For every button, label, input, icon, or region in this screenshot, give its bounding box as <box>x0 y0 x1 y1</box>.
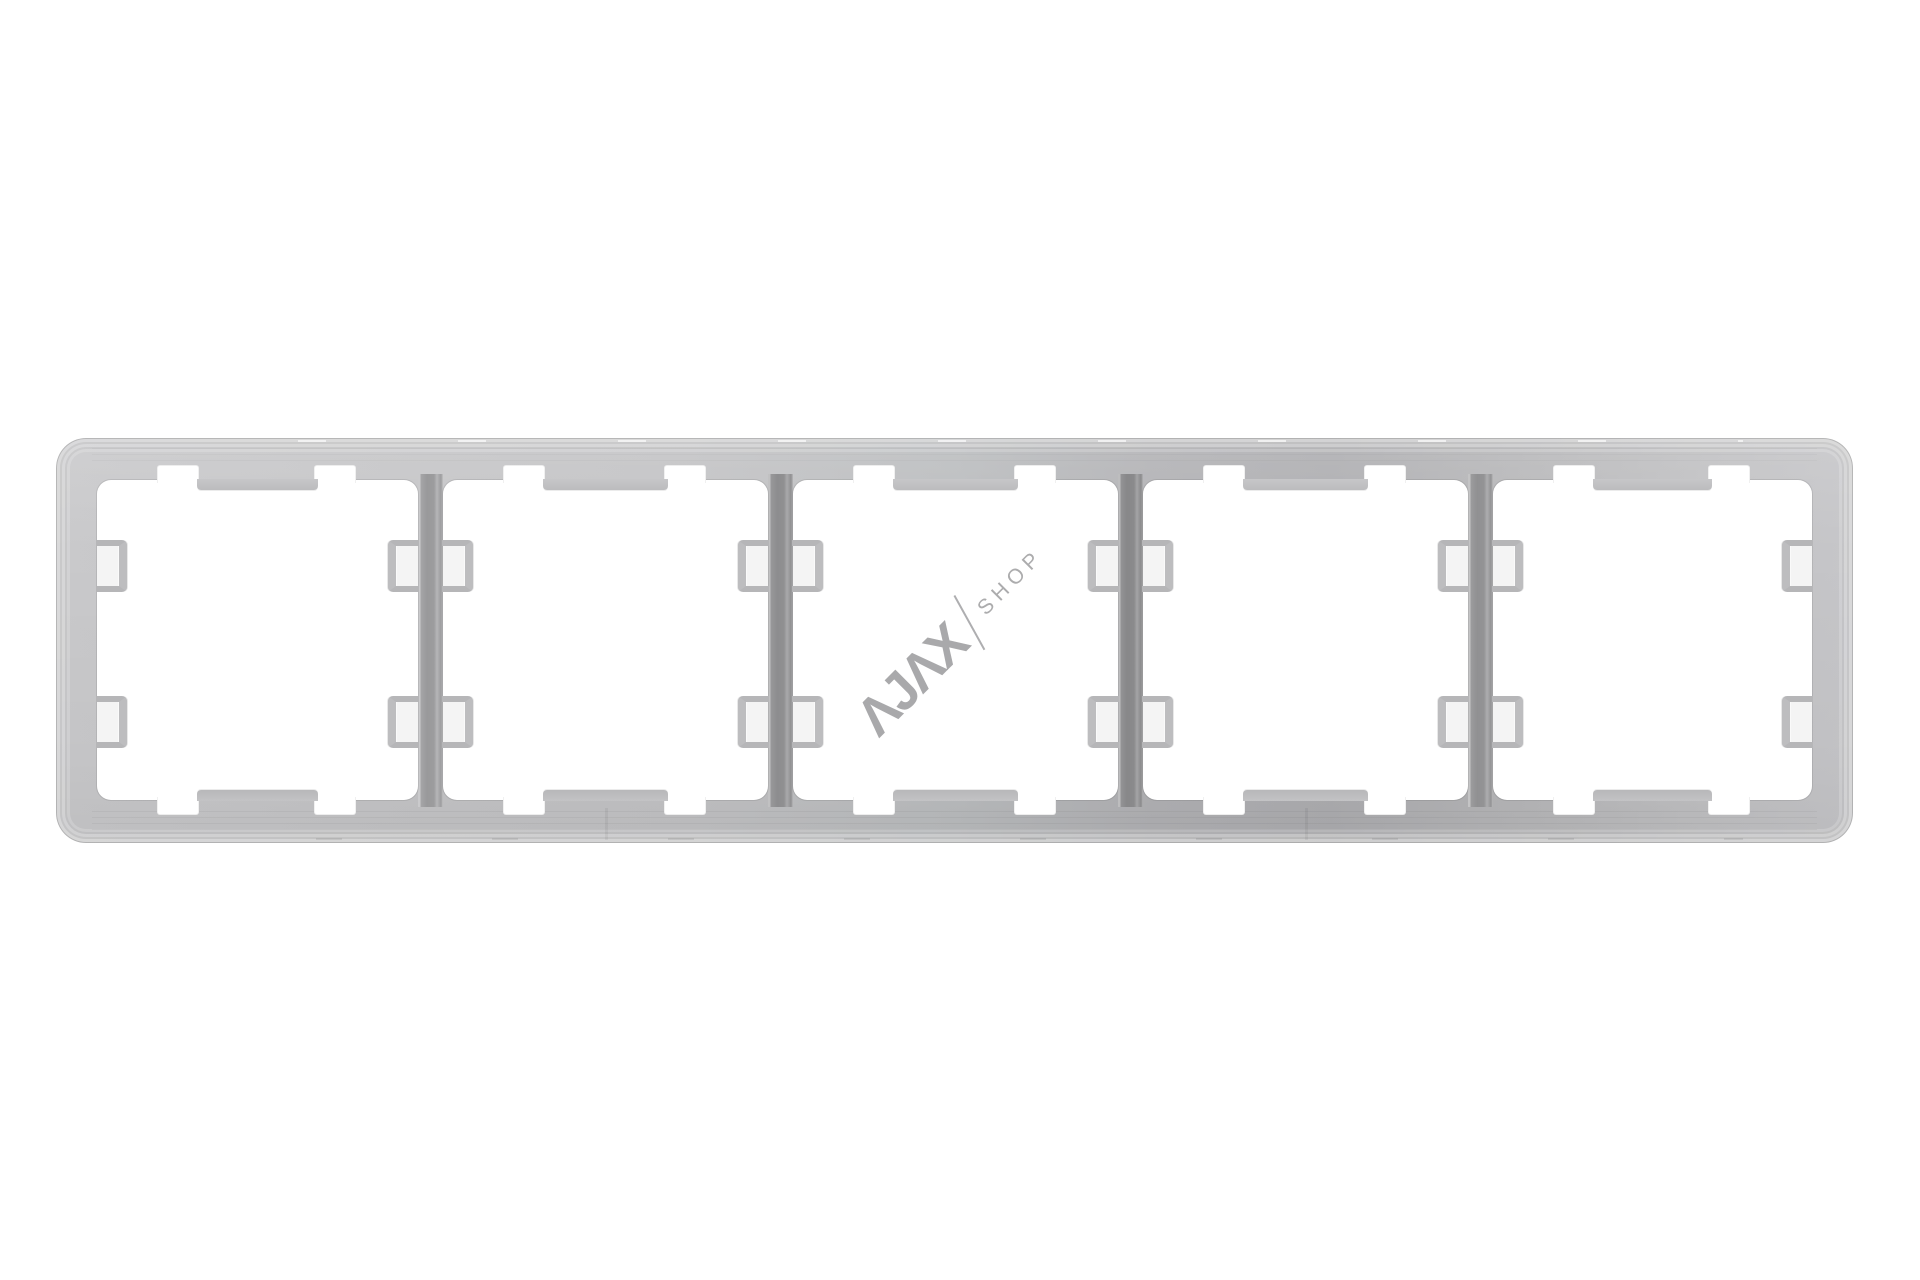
alignment-notch-bottom-right <box>664 797 706 815</box>
alignment-notch-bottom-left <box>853 797 895 815</box>
center-tab-bottom <box>1243 790 1368 801</box>
alignment-notch-bottom-right <box>314 797 356 815</box>
retention-clip-right-lower <box>738 696 769 748</box>
alignment-notch-top-right <box>1364 465 1406 483</box>
center-tab-top <box>1243 479 1368 490</box>
center-tab-top <box>1593 479 1712 490</box>
center-tab-bottom <box>543 790 668 801</box>
center-tab-bottom <box>1593 790 1712 801</box>
retention-clip-left-upper <box>96 540 127 592</box>
alignment-notch-bottom-left <box>157 797 199 815</box>
retention-clip-right-upper <box>1088 540 1119 592</box>
retention-clip-right-upper <box>388 540 419 592</box>
retention-clip-left-upper <box>1142 540 1173 592</box>
frame-window-5 <box>1493 480 1812 800</box>
retention-clip-left-upper <box>1492 540 1523 592</box>
alignment-notch-bottom-left <box>1203 797 1245 815</box>
center-tab-bottom <box>197 790 318 801</box>
divider-bar-3 <box>1118 474 1143 807</box>
retention-clip-left-lower <box>442 696 473 748</box>
divider-bar-1 <box>418 474 443 807</box>
alignment-notch-top-right <box>664 465 706 483</box>
molding-ridges-top <box>92 448 1817 466</box>
alignment-notch-bottom-left <box>503 797 545 815</box>
alignment-notch-top-left <box>853 465 895 483</box>
alignment-notch-top-left <box>157 465 199 483</box>
center-tab-top <box>197 479 318 490</box>
mold-seam <box>1305 808 1308 840</box>
alignment-notch-top-right <box>1708 465 1750 483</box>
retention-clip-left-upper <box>442 540 473 592</box>
alignment-notch-top-left <box>1203 465 1245 483</box>
alignment-notch-top-right <box>314 465 356 483</box>
retention-clip-right-upper <box>738 540 769 592</box>
center-tab-bottom <box>893 790 1018 801</box>
retention-clip-right-lower <box>1438 696 1469 748</box>
retention-clip-right-lower <box>1782 696 1813 748</box>
frame-window-2 <box>443 480 768 800</box>
retention-clip-left-upper <box>792 540 823 592</box>
retention-clip-left-lower <box>792 696 823 748</box>
mold-seam <box>605 808 608 840</box>
retention-clip-right-upper <box>1782 540 1813 592</box>
retention-clip-left-lower <box>96 696 127 748</box>
molding-ticks-top <box>166 440 1743 442</box>
alignment-notch-bottom-right <box>1364 797 1406 815</box>
frame-window-1 <box>97 480 418 800</box>
alignment-notch-bottom-right <box>1708 797 1750 815</box>
alignment-notch-top-right <box>1014 465 1056 483</box>
retention-clip-right-lower <box>1088 696 1119 748</box>
alignment-notch-top-left <box>503 465 545 483</box>
divider-bar-4 <box>1468 474 1493 807</box>
retention-clip-right-lower <box>388 696 419 748</box>
alignment-notch-bottom-left <box>1553 797 1595 815</box>
center-tab-top <box>543 479 668 490</box>
alignment-notch-bottom-right <box>1014 797 1056 815</box>
alignment-notch-top-left <box>1553 465 1595 483</box>
retention-clip-left-lower <box>1142 696 1173 748</box>
molding-ticks-bottom <box>166 838 1743 840</box>
retention-clip-right-upper <box>1438 540 1469 592</box>
frame-window-4 <box>1143 480 1468 800</box>
retention-clip-left-lower <box>1492 696 1523 748</box>
divider-bar-2 <box>768 474 793 807</box>
center-tab-top <box>893 479 1018 490</box>
